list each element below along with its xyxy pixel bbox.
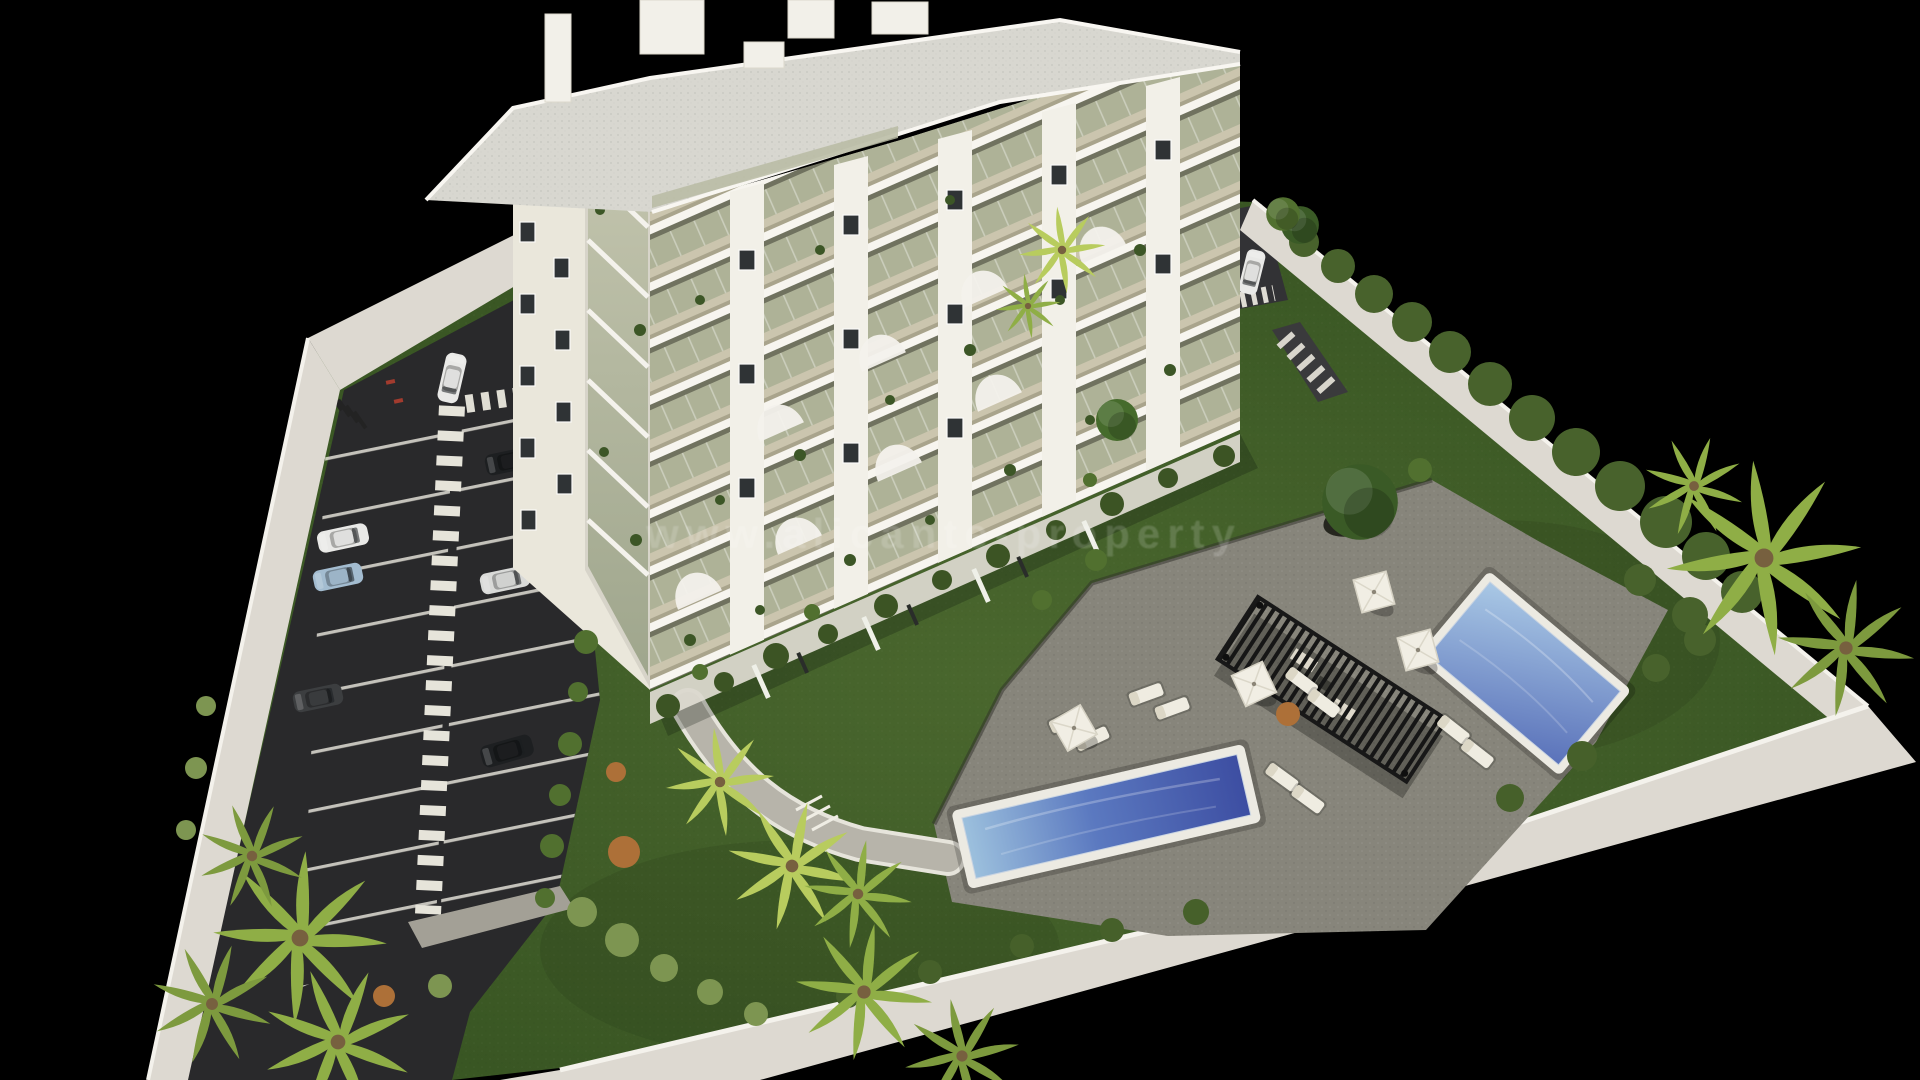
chimney	[545, 14, 571, 102]
planter-tree	[1322, 464, 1398, 540]
architectural-render: www.alicante-property	[0, 0, 1920, 1080]
tree	[1096, 399, 1138, 441]
tree	[1266, 197, 1300, 231]
watermark-text: www.alicante-property	[645, 510, 1242, 557]
